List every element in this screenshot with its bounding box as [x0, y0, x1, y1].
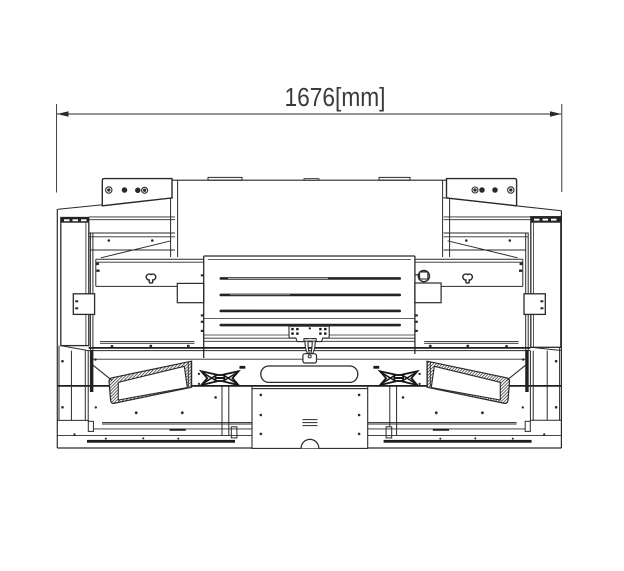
svg-text:1676[mm]: 1676[mm] [285, 84, 386, 112]
